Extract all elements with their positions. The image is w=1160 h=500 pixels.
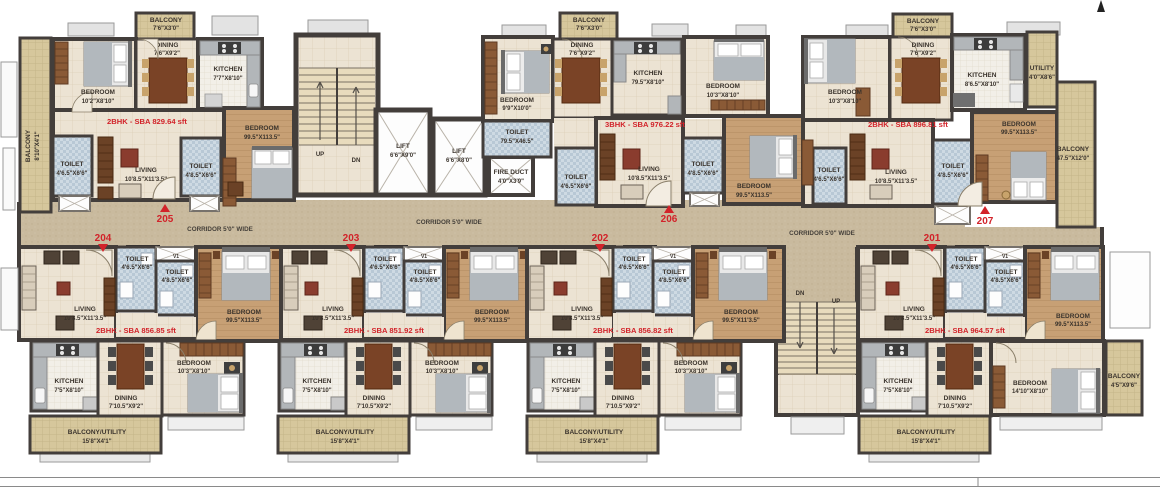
svg-text:BALCONY: BALCONY <box>1108 373 1141 380</box>
svg-text:UTILITY: UTILITY <box>1030 65 1055 72</box>
svg-text:TOILET: TOILET <box>565 174 588 181</box>
svg-text:10'8.5"X11'3.5": 10'8.5"X11'3.5" <box>628 176 670 182</box>
svg-text:CORRIDOR 5'0" WIDE: CORRIDOR 5'0" WIDE <box>789 230 855 237</box>
svg-text:TOILET: TOILET <box>190 163 213 170</box>
svg-text:KITCHEN: KITCHEN <box>634 70 663 77</box>
svg-text:7'5"X8'10": 7'5"X8'10" <box>551 388 580 394</box>
svg-text:BEDROOM: BEDROOM <box>1056 313 1090 320</box>
svg-text:4'5"X9'6": 4'5"X9'6" <box>1111 383 1137 389</box>
svg-text:6'6"X8'0": 6'6"X8'0" <box>446 158 472 164</box>
svg-text:99.5"X113.5": 99.5"X113.5" <box>1001 130 1037 136</box>
svg-text:7'6"X9'2": 7'6"X9'2" <box>910 51 936 57</box>
svg-text:DINING: DINING <box>612 395 635 402</box>
svg-text:79.5"X8'10": 79.5"X8'10" <box>632 80 665 86</box>
svg-text:10'3"X8'10": 10'3"X8'10" <box>178 369 211 375</box>
svg-text:DINING: DINING <box>944 395 967 402</box>
svg-text:7'6"X3'0": 7'6"X3'0" <box>910 27 936 33</box>
svg-text:99.5"X113.5": 99.5"X113.5" <box>474 318 510 324</box>
svg-text:47.5"X12'0": 47.5"X12'0" <box>1057 156 1090 162</box>
svg-text:202: 202 <box>592 233 609 244</box>
svg-text:LIVING: LIVING <box>135 167 157 174</box>
svg-text:4'6.5"X6'6": 4'6.5"X6'6" <box>814 177 845 183</box>
svg-text:10'8.5"X11'3.5": 10'8.5"X11'3.5" <box>64 316 106 322</box>
svg-text:KITCHEN: KITCHEN <box>214 66 243 73</box>
svg-text:15'8"X4'1": 15'8"X4'1" <box>579 439 608 445</box>
svg-text:BEDROOM: BEDROOM <box>674 360 708 367</box>
svg-text:BEDROOM: BEDROOM <box>81 89 115 96</box>
svg-text:7'10.5"X9'2": 7'10.5"X9'2" <box>606 404 640 410</box>
svg-text:TOILET: TOILET <box>166 269 189 276</box>
svg-text:10'8.5"X11'3.5": 10'8.5"X11'3.5" <box>875 179 917 185</box>
svg-text:4'8.5"X6'6": 4'8.5"X6'6" <box>688 171 719 177</box>
svg-text:LIVING: LIVING <box>74 306 96 313</box>
svg-text:99.5"X113.5": 99.5"X113.5" <box>226 318 262 324</box>
svg-text:4'0"X8'6": 4'0"X8'6" <box>1029 75 1055 81</box>
svg-text:BALCONY: BALCONY <box>25 129 32 162</box>
svg-text:KITCHEN: KITCHEN <box>968 72 997 79</box>
svg-text:4'8.5"X6'6": 4'8.5"X6'6" <box>410 278 441 284</box>
svg-text:2BHK - SBA 964.57 sft: 2BHK - SBA 964.57 sft <box>925 326 1005 335</box>
svg-text:207: 207 <box>977 216 994 227</box>
svg-text:7'6"X9'2": 7'6"X9'2" <box>569 51 595 57</box>
svg-text:UP: UP <box>832 299 840 305</box>
svg-text:10'8.5"X11'3.5": 10'8.5"X11'3.5" <box>561 316 603 322</box>
svg-text:LIVING: LIVING <box>638 166 660 173</box>
svg-text:DN: DN <box>352 158 361 164</box>
svg-text:10'3"X8'10": 10'3"X8'10" <box>707 93 740 99</box>
svg-text:7'6"X3'0": 7'6"X3'0" <box>576 26 602 32</box>
svg-text:V1: V1 <box>173 254 179 260</box>
svg-text:7'10.5"X9'2": 7'10.5"X9'2" <box>109 404 143 410</box>
svg-text:10'3"X8'10": 10'3"X8'10" <box>675 369 708 375</box>
svg-text:4'6.5"X6'6": 4'6.5"X6'6" <box>561 184 592 190</box>
svg-text:TOILET: TOILET <box>623 256 646 263</box>
svg-text:10'3"X8'10": 10'3"X8'10" <box>426 369 459 375</box>
svg-text:201: 201 <box>924 233 941 244</box>
svg-text:7'10.5"X9'2": 7'10.5"X9'2" <box>938 404 972 410</box>
svg-text:7'10.5"X9'2": 7'10.5"X9'2" <box>357 404 391 410</box>
svg-text:4'8.5"X6'6": 4'8.5"X6'6" <box>991 278 1022 284</box>
svg-text:BEDROOM: BEDROOM <box>475 309 509 316</box>
svg-text:TOILET: TOILET <box>126 256 149 263</box>
svg-text:V1: V1 <box>1002 254 1008 260</box>
svg-text:LIFT: LIFT <box>452 148 466 155</box>
svg-text:TOILET: TOILET <box>955 256 978 263</box>
svg-text:2BHK - SBA 896.81 sft: 2BHK - SBA 896.81 sft <box>868 120 948 129</box>
svg-text:99.5"X11'3.5": 99.5"X11'3.5" <box>722 318 760 324</box>
svg-text:7'5"X8'10": 7'5"X8'10" <box>54 388 83 394</box>
svg-text:LIVING: LIVING <box>903 306 925 313</box>
svg-text:10'2"X8'10": 10'2"X8'10" <box>82 99 115 105</box>
svg-text:CORRIDOR 5'0" WIDE: CORRIDOR 5'0" WIDE <box>187 226 253 233</box>
svg-text:TOILET: TOILET <box>663 269 686 276</box>
svg-text:6'6"X9'0": 6'6"X9'0" <box>390 153 416 159</box>
svg-text:4'6.5"X6'6": 4'6.5"X6'6" <box>619 265 650 271</box>
svg-text:DN: DN <box>796 291 805 297</box>
svg-text:UP: UP <box>316 152 324 158</box>
svg-text:KITCHEN: KITCHEN <box>884 378 913 385</box>
svg-text:7'6"X3'0": 7'6"X3'0" <box>153 26 179 32</box>
svg-text:4'6.5"X6'6": 4'6.5"X6'6" <box>370 265 401 271</box>
svg-text:4'8.5"X6'6": 4'8.5"X6'6" <box>186 173 217 179</box>
svg-text:LIVING: LIVING <box>885 169 907 176</box>
svg-text:BALCONY/UTILITY: BALCONY/UTILITY <box>897 429 956 436</box>
svg-text:TOILET: TOILET <box>61 161 84 168</box>
svg-text:8'10"X4'1": 8'10"X4'1" <box>35 131 41 160</box>
svg-text:BALCONY: BALCONY <box>573 17 606 24</box>
svg-text:TOILET: TOILET <box>942 163 965 170</box>
svg-text:4'8.5"X6'6": 4'8.5"X6'6" <box>938 173 969 179</box>
svg-text:4'6.5"X6'6": 4'6.5"X6'6" <box>57 171 88 177</box>
svg-text:DINING: DINING <box>115 395 138 402</box>
svg-text:BEDROOM: BEDROOM <box>737 183 771 190</box>
svg-text:BEDROOM: BEDROOM <box>828 89 862 96</box>
svg-text:TOILET: TOILET <box>506 129 529 136</box>
svg-text:LIVING: LIVING <box>571 306 593 313</box>
svg-text:204: 204 <box>95 233 112 244</box>
svg-text:TOILET: TOILET <box>995 269 1018 276</box>
svg-text:10'3"X8'10": 10'3"X8'10" <box>829 99 862 105</box>
svg-text:4'0"X3'9": 4'0"X3'9" <box>498 179 524 185</box>
svg-text:BEDROOM: BEDROOM <box>245 125 279 132</box>
svg-text:8'6.5"X8'10": 8'6.5"X8'10" <box>965 82 999 88</box>
svg-text:2BHK - SBA 829.64 sft: 2BHK - SBA 829.64 sft <box>107 117 187 126</box>
svg-text:10'8.5"X11'3.5": 10'8.5"X11'3.5" <box>312 316 354 322</box>
svg-text:4'8.5"X6'6": 4'8.5"X6'6" <box>659 278 690 284</box>
svg-text:14'10"X8'10": 14'10"X8'10" <box>1012 389 1048 395</box>
svg-text:3BHK - SBA 976.22 sft: 3BHK - SBA 976.22 sft <box>605 120 685 129</box>
svg-text:BEDROOM: BEDROOM <box>227 309 261 316</box>
svg-text:4'6.5"X6'6": 4'6.5"X6'6" <box>122 265 153 271</box>
svg-text:TOILET: TOILET <box>414 269 437 276</box>
svg-text:203: 203 <box>343 233 360 244</box>
svg-text:7'5"X8'10": 7'5"X8'10" <box>883 388 912 394</box>
svg-text:BEDROOM: BEDROOM <box>177 360 211 367</box>
svg-text:79.5"X46.5": 79.5"X46.5" <box>500 139 533 145</box>
svg-text:DINING: DINING <box>156 42 179 49</box>
svg-text:99.5"X113.5": 99.5"X113.5" <box>244 135 280 141</box>
svg-text:7'7"X8'10": 7'7"X8'10" <box>213 76 242 82</box>
svg-text:9'9"X10'0": 9'9"X10'0" <box>502 106 531 112</box>
svg-text:DINING: DINING <box>571 42 594 49</box>
svg-text:15'8"X4'1": 15'8"X4'1" <box>330 439 359 445</box>
svg-text:BALCONY/UTILITY: BALCONY/UTILITY <box>68 429 127 436</box>
svg-text:BEDROOM: BEDROOM <box>1002 121 1036 128</box>
svg-text:15'8"X4'1": 15'8"X4'1" <box>911 439 940 445</box>
svg-text:2BHK - SBA 856.82 sft: 2BHK - SBA 856.82 sft <box>593 326 673 335</box>
svg-text:LIVING: LIVING <box>322 306 344 313</box>
svg-text:LIFT: LIFT <box>396 143 410 150</box>
svg-text:DINING: DINING <box>363 395 386 402</box>
svg-text:BEDROOM: BEDROOM <box>500 97 534 104</box>
svg-text:CORRIDOR 5'0" WIDE: CORRIDOR 5'0" WIDE <box>416 219 482 226</box>
svg-text:KITCHEN: KITCHEN <box>55 378 84 385</box>
svg-text:BEDROOM: BEDROOM <box>706 83 740 90</box>
svg-text:10'8.5"X11'3.5": 10'8.5"X11'3.5" <box>893 316 935 322</box>
svg-text:BALCONY: BALCONY <box>1057 146 1090 153</box>
svg-text:TOILET: TOILET <box>374 256 397 263</box>
svg-text:FIRE DUCT: FIRE DUCT <box>494 169 529 176</box>
svg-text:4'6.5"X6'6": 4'6.5"X6'6" <box>951 265 982 271</box>
svg-text:KITCHEN: KITCHEN <box>552 378 581 385</box>
svg-text:BEDROOM: BEDROOM <box>724 309 758 316</box>
svg-text:BALCONY: BALCONY <box>150 17 183 24</box>
svg-text:99.5"X113.5": 99.5"X113.5" <box>1055 322 1091 328</box>
svg-text:BEDROOM: BEDROOM <box>425 360 459 367</box>
svg-text:DINING: DINING <box>912 42 935 49</box>
svg-text:KITCHEN: KITCHEN <box>303 378 332 385</box>
svg-text:BEDROOM: BEDROOM <box>1013 380 1047 387</box>
svg-text:BALCONY/UTILITY: BALCONY/UTILITY <box>565 429 624 436</box>
svg-text:4'8.5"X6'6": 4'8.5"X6'6" <box>162 278 193 284</box>
svg-text:2BHK - SBA 851.92 sft: 2BHK - SBA 851.92 sft <box>344 326 424 335</box>
svg-text:V1: V1 <box>670 254 676 260</box>
svg-text:BALCONY/UTILITY: BALCONY/UTILITY <box>316 429 375 436</box>
svg-text:2BHK - SBA 856.85 sft: 2BHK - SBA 856.85 sft <box>96 326 176 335</box>
svg-text:99.5"X113.5": 99.5"X113.5" <box>736 193 772 199</box>
svg-text:205: 205 <box>157 214 174 225</box>
svg-text:TOILET: TOILET <box>818 167 841 174</box>
svg-text:7'5"X8'10": 7'5"X8'10" <box>302 388 331 394</box>
svg-text:BALCONY: BALCONY <box>907 18 940 25</box>
svg-text:15'8"X4'1": 15'8"X4'1" <box>82 439 111 445</box>
svg-text:V1: V1 <box>421 254 427 260</box>
svg-text:TOILET: TOILET <box>692 161 715 168</box>
svg-text:206: 206 <box>661 214 678 225</box>
